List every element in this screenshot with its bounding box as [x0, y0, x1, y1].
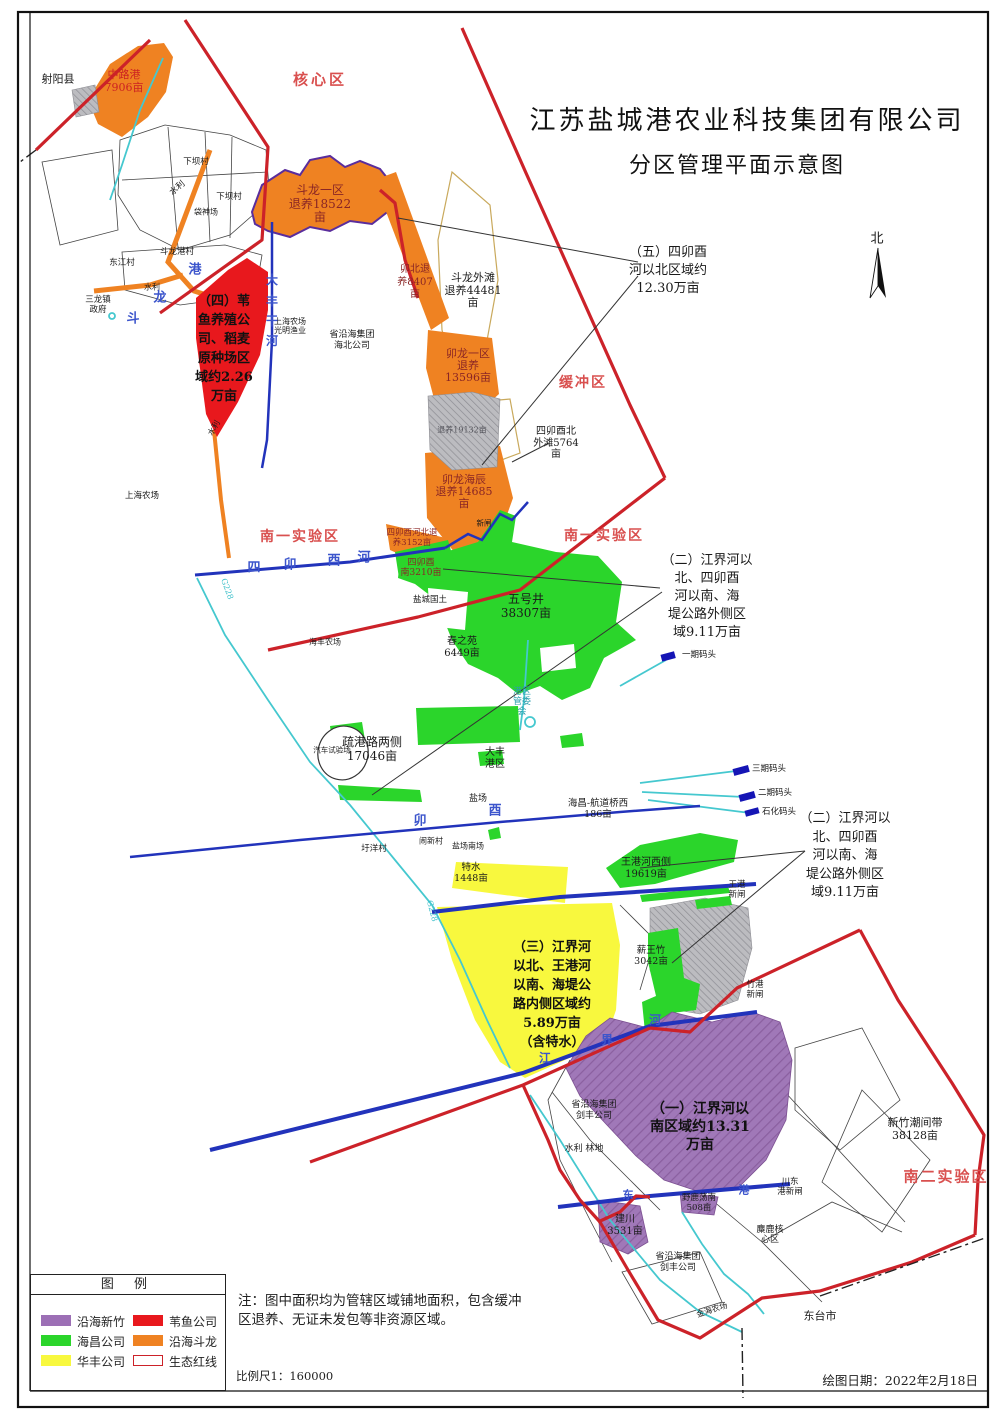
scale-label: 比例尺1：160000	[236, 1368, 333, 1384]
north-arrow-icon	[870, 248, 886, 298]
place-gangquguanweihui: 港区 管委 会	[510, 687, 534, 717]
place-dafenggangqu: 大丰 港区	[482, 747, 508, 770]
annotation-area4: （四）苇 鱼养殖公 司、稻麦 原种场区 域约2.26 万亩	[179, 292, 269, 406]
map-canvas	[0, 0, 1005, 1421]
river-simaoyou-char1: 四	[247, 562, 260, 577]
legend-label-weiyu: 苇鱼公司	[169, 1313, 217, 1330]
place-yanchangnanchang: 盐场南场	[452, 841, 484, 850]
label-maobei: 卯北退 养8407 亩	[392, 264, 438, 302]
annotation-area3: （三）江界河 以北、王港河 以南、海堤公 路内侧区域约 5.89万亩 （含特水）	[497, 938, 607, 1052]
label-maolong1: 卯龙一区 退养 13596亩	[440, 348, 496, 384]
river-doulonggang-char3: 港	[188, 264, 201, 279]
legend-swatch-haichang	[41, 1335, 71, 1346]
river-dafengganhe-char4: 河	[266, 335, 278, 349]
river-chuandonggang-char2: 港	[739, 1185, 750, 1198]
legend-swatch-yanhaidoulong	[133, 1335, 163, 1346]
zone-south1-left: 南一实验区	[260, 529, 340, 545]
legend-label-huafeng: 华丰公司	[77, 1353, 125, 1370]
annotation-waitan5764: 四卯酉北 外滩5764 亩	[521, 426, 591, 461]
legend-swatch-weiyu	[133, 1315, 163, 1326]
annotation-area2-upper: （二）江界河以 北、四卯酉 河以南、海 堤公路外侧区 域9.11万亩	[647, 552, 767, 642]
map-title: 江苏盐城港农业科技集团有限公司	[529, 107, 964, 137]
label-xinwangzhu: 薪王竹 3042亩	[629, 945, 673, 967]
dock-label-phase2: 二期码头	[758, 786, 792, 798]
river-simaoyou-char2: 卯	[283, 559, 296, 574]
label-chunzhiyuan: 春之苑 6449亩	[436, 636, 488, 659]
label-maolonghaichen: 卯龙海辰 退养14685 亩	[433, 474, 495, 510]
label-sihebei3152: 四卯酉河北退 养3152亩	[381, 529, 443, 548]
place-yanchengguotu: 盐城国土	[413, 596, 447, 606]
label-jianchuan: 建川 3531亩	[605, 1214, 645, 1237]
place-miluhexinqu: 麋鹿核 心区	[754, 1225, 786, 1245]
label-zhonglugang: 中路港 7906亩	[96, 68, 152, 94]
place-daishenchang: 袋神场	[194, 207, 218, 216]
place-sheyangxian: 射阳县	[42, 74, 75, 87]
label-sihenan3210: 四卯酉 南3210亩	[399, 558, 443, 578]
river-chuandonggang-char1: 东	[623, 1190, 634, 1203]
place-jianfenggongsi-1: 省沿海集团 剑丰公司	[567, 1100, 621, 1121]
river-jiangjiehe-char1: 江	[539, 1052, 551, 1066]
place-naoxincun: 闹新村	[419, 836, 443, 845]
place-xinzha: 新闸	[477, 520, 492, 529]
dashdot-boundaries	[20, 150, 985, 1398]
legend-swatch-ecoline	[133, 1355, 163, 1366]
label-teshui: 特水 1448亩	[449, 862, 493, 884]
river-doulonggang-char2: 龙	[153, 292, 166, 307]
label-doulong1: 斗龙一区 退养18522 亩	[285, 184, 355, 225]
place-dongtaishi: 东台市	[804, 1311, 837, 1324]
annotation-area2-lower: （二）江界河以 北、四卯酉 河以南、海 堤公路外侧区 域9.11万亩	[785, 810, 905, 903]
place-doulonggangcun: 斗龙港村	[160, 248, 194, 258]
place-dongjiangcun: 东江村	[109, 259, 135, 269]
place-jianfenggongsi-2: 省沿海集团 剑丰公司	[651, 1252, 705, 1273]
place-weiyangcun: 圩洋村	[361, 845, 387, 855]
river-dafengganhe-char3: 干	[266, 315, 278, 329]
label-yeludangnan: 野鹿荡南 508亩	[677, 1193, 721, 1213]
river-jiangjiehe-char3: 河	[649, 1014, 661, 1028]
legend-swatch-huafeng	[41, 1355, 71, 1366]
river-maoyou-char2: 酉	[488, 805, 501, 820]
zone-south1-right: 南一实验区	[564, 528, 644, 544]
place-shuililindi: 水利 林地	[565, 1144, 604, 1154]
zone-buffer: 缓冲区	[559, 375, 607, 391]
place-haibeigongsi: 省沿海集团 海北公司	[325, 330, 379, 351]
legend-box: 图 例 沿海新竹 苇鱼公司 海昌公司 沿海斗龙 华丰公司 生态红线	[30, 1274, 226, 1391]
river-maoyou-char1: 卯	[413, 815, 426, 830]
place-wanggangxinzha: 王港 新闸	[726, 881, 748, 900]
label-haichang-hangdao: 海昌-航道桥西 186亩	[558, 798, 638, 820]
annotation-area1: （一）江界河以 南区域约13.31 万亩	[635, 1100, 765, 1154]
place-qicheshiyanchang: 汽车试验场	[313, 747, 351, 756]
place-yanchang: 盐场	[469, 794, 487, 804]
place-shanghainongchang-2: 上海农场	[125, 492, 159, 502]
dock-markers	[660, 651, 759, 816]
dock-label-petrochemical: 石化码头	[762, 805, 796, 817]
legend-swatch-yanhaixinzhu	[41, 1315, 71, 1326]
label-doulongwaitan: 斗龙外滩 退养44481 亩	[440, 272, 506, 310]
map-sheet: 江苏盐城港农业科技集团有限公司 分区管理平面示意图 北 核心区 缓冲区 南一实验…	[0, 0, 1005, 1421]
place-xiabacun-2: 下坝村	[216, 193, 242, 203]
river-dafengganhe-char1: 大	[266, 274, 278, 288]
annotation-chaojiandai: 新竹潮间带 38128亩	[875, 1116, 955, 1142]
dock-label-phase1: 一期码头	[682, 648, 716, 660]
river-simaoyou-char3: 酉	[327, 555, 340, 570]
river-simaoyou-char4: 河	[357, 552, 370, 567]
legend-label-yanhaidoulong: 沿海斗龙	[169, 1333, 217, 1350]
place-haifengnongchang: 海丰农场	[309, 637, 341, 646]
date-label: 绘图日期：2022年2月18日	[700, 1370, 978, 1389]
place-sanlongzhen: 三龙镇 政府	[81, 296, 115, 315]
label-wuhaojing: 五号井 38307亩	[495, 592, 557, 620]
legend-label-haichang: 海昌公司	[77, 1333, 125, 1350]
label-tuiyang19132: 退养19132亩	[437, 425, 486, 434]
dock-label-phase3: 三期码头	[752, 762, 786, 774]
map-note: 注：图中面积均为管辖区域铺地面积，包含缓冲 区退养、无证未发包等非资源区域。	[238, 1292, 578, 1330]
zone-core: 核心区	[293, 71, 347, 88]
zone-south2: 南二实验区	[903, 1168, 988, 1185]
map-subtitle: 分区管理平面示意图	[629, 153, 845, 178]
place-chuandonggangxinzha: 川东 港新闸	[775, 1178, 805, 1197]
river-dafengganhe-char2: 丰	[266, 295, 278, 309]
label-wangganghexice: 王港河西侧 19619亩	[613, 857, 679, 880]
legend-label-ecoline: 生态红线	[169, 1353, 217, 1370]
annotation-area5: （五）四卯酉 河以北区域约 12.30万亩	[608, 244, 728, 298]
river-doulonggang-char1: 斗	[126, 313, 139, 328]
north-label: 北	[870, 233, 883, 248]
legend-header: 图 例	[31, 1275, 225, 1295]
river-jiangjiehe-char2: 界	[601, 1034, 613, 1048]
place-zhugangxinzha: 竹港 新闸	[744, 981, 766, 1000]
place-xiabacun-1: 下坝村	[183, 158, 209, 168]
legend-label-yanhaixinzhu: 沿海新竹	[77, 1313, 125, 1330]
